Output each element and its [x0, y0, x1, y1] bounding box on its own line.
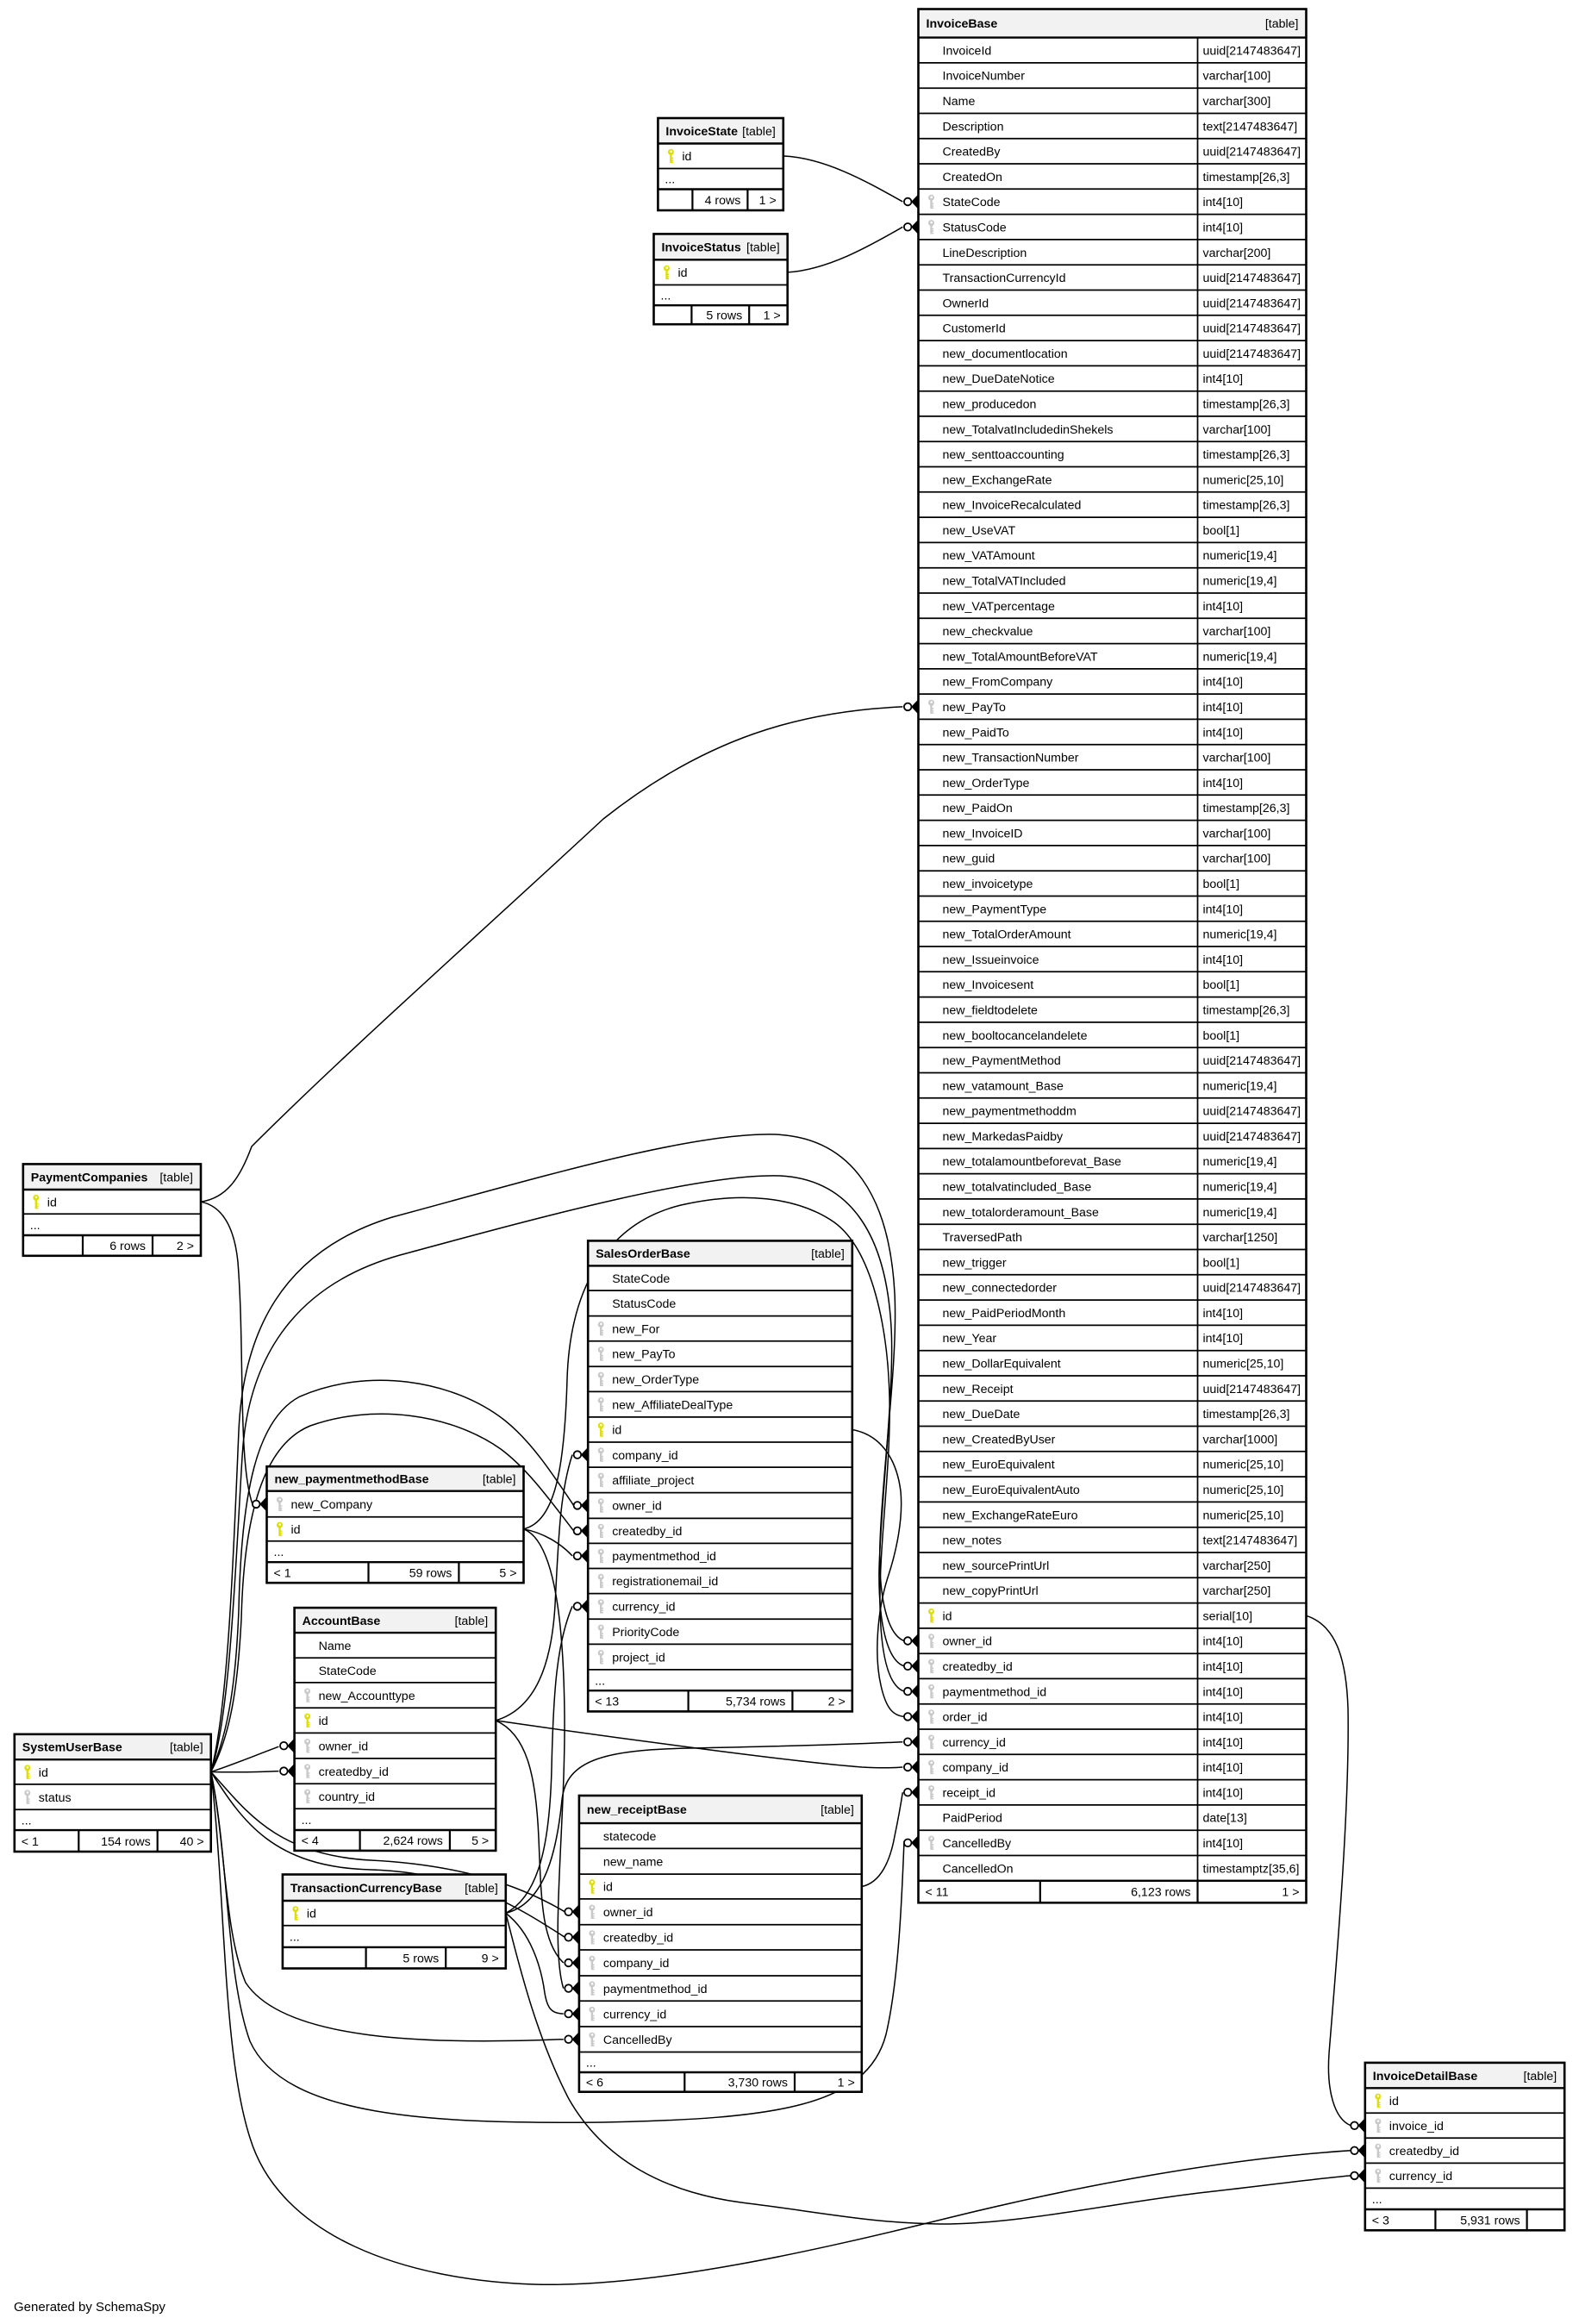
svg-text:numeric[19,4]: numeric[19,4] — [1203, 575, 1277, 589]
svg-text:new_TotalVATIncluded: new_TotalVATIncluded — [943, 575, 1066, 589]
svg-text:numeric[19,4]: numeric[19,4] — [1203, 1181, 1277, 1195]
svg-text:owner_id: owner_id — [319, 1740, 369, 1753]
svg-text:uuid[2147483647]: uuid[2147483647] — [1203, 1130, 1301, 1144]
svg-text:CreatedOn: CreatedOn — [943, 171, 1002, 184]
svg-text:receipt_id: receipt_id — [943, 1787, 996, 1801]
svg-text:new_DueDate: new_DueDate — [943, 1408, 1020, 1421]
svg-text:...: ... — [586, 2056, 596, 2070]
svg-text:6 rows: 6 rows — [109, 1240, 146, 1253]
svg-text:id: id — [612, 1424, 621, 1438]
svg-text:[table]: [table] — [455, 1615, 489, 1628]
svg-text:[table]: [table] — [465, 1882, 498, 1896]
svg-text:59 rows: 59 rows — [409, 1566, 452, 1580]
svg-text:StateCode: StateCode — [319, 1665, 377, 1678]
svg-text:statecode: statecode — [603, 1830, 657, 1844]
svg-text:154 rows: 154 rows — [101, 1835, 151, 1849]
svg-text:new_TotalOrderAmount: new_TotalOrderAmount — [943, 928, 1071, 942]
svg-text:new_booltocancelandelete: new_booltocancelandelete — [943, 1029, 1088, 1043]
svg-text:new_Issueinvoice: new_Issueinvoice — [943, 953, 1039, 967]
svg-text:timestamp[26,3]: timestamp[26,3] — [1203, 398, 1290, 412]
svg-text:PaymentCompanies: PaymentCompanies — [31, 1171, 148, 1184]
svg-text:int4[10]: int4[10] — [1203, 1711, 1244, 1725]
svg-text:new_EuroEquivalentAuto: new_EuroEquivalentAuto — [943, 1484, 1080, 1497]
svg-text:new_VATpercentage: new_VATpercentage — [943, 600, 1056, 614]
svg-text:new_Receipt: new_Receipt — [943, 1383, 1014, 1396]
svg-text:< 3: < 3 — [1372, 2214, 1389, 2227]
svg-text:numeric[19,4]: numeric[19,4] — [1203, 549, 1277, 563]
svg-text:id: id — [943, 1609, 952, 1623]
svg-text:...: ... — [665, 173, 675, 187]
svg-text:[table]: [table] — [159, 1171, 193, 1184]
svg-text:new_connectedorder: new_connectedorder — [943, 1282, 1058, 1296]
svg-text:currency_id: currency_id — [1389, 2170, 1452, 2183]
svg-text:PaidPeriod: PaidPeriod — [943, 1812, 1002, 1826]
svg-text:new_OrderType: new_OrderType — [943, 777, 1030, 790]
svg-text:timestamp[26,3]: timestamp[26,3] — [1203, 1408, 1290, 1421]
svg-text:new_sourcePrintUrl: new_sourcePrintUrl — [943, 1559, 1050, 1573]
svg-text:new_CreatedByUser: new_CreatedByUser — [943, 1433, 1056, 1446]
svg-text:paymentmethod_id: paymentmethod_id — [943, 1685, 1047, 1699]
svg-text:Generated by SchemaSpy: Generated by SchemaSpy — [14, 2300, 165, 2315]
svg-text:new_TotalvatIncludedinShekels: new_TotalvatIncludedinShekels — [943, 423, 1114, 437]
svg-text:4 rows: 4 rows — [705, 194, 741, 208]
svg-text:numeric[25,10]: numeric[25,10] — [1203, 473, 1284, 487]
svg-text:createdby_id: createdby_id — [1389, 2145, 1459, 2158]
svg-text:new_producedon: new_producedon — [943, 398, 1037, 412]
svg-text:new_vatamount_Base: new_vatamount_Base — [943, 1079, 1064, 1093]
svg-text:uuid[2147483647]: uuid[2147483647] — [1203, 1054, 1301, 1068]
svg-text:int4[10]: int4[10] — [1203, 1837, 1244, 1851]
svg-text:new_InvoiceID: new_InvoiceID — [943, 827, 1023, 840]
svg-text:id: id — [1389, 2095, 1399, 2108]
svg-text:...: ... — [274, 1546, 284, 1559]
svg-text:currency_id: currency_id — [943, 1736, 1006, 1750]
svg-text:new_For: new_For — [612, 1322, 659, 1336]
svg-text:numeric[19,4]: numeric[19,4] — [1203, 650, 1277, 664]
svg-text:varchar[100]: varchar[100] — [1203, 853, 1271, 866]
svg-text:new_totalvatincluded_Base: new_totalvatincluded_Base — [943, 1181, 1092, 1195]
svg-text:1 >: 1 > — [759, 194, 777, 208]
svg-text:uuid[2147483647]: uuid[2147483647] — [1203, 322, 1301, 336]
svg-text:StateCode: StateCode — [612, 1272, 670, 1286]
svg-text:new_PaidPeriodMonth: new_PaidPeriodMonth — [943, 1307, 1066, 1321]
svg-text:CreatedBy: CreatedBy — [943, 146, 1002, 159]
svg-text:new_paymentmethoddm: new_paymentmethoddm — [943, 1105, 1077, 1119]
svg-text:new_receiptBase: new_receiptBase — [587, 1803, 687, 1817]
svg-text:owner_id: owner_id — [943, 1635, 993, 1649]
svg-text:1 >: 1 > — [838, 2077, 855, 2090]
svg-text:company_id: company_id — [943, 1761, 1009, 1775]
svg-text:new_copyPrintUrl: new_copyPrintUrl — [943, 1584, 1039, 1598]
svg-text:< 13: < 13 — [595, 1696, 619, 1709]
svg-text:1 >: 1 > — [1282, 1886, 1299, 1900]
svg-text:int4[10]: int4[10] — [1203, 222, 1244, 235]
svg-text:2 >: 2 > — [177, 1240, 194, 1253]
svg-text:affiliate_project: affiliate_project — [612, 1474, 694, 1488]
svg-text:2 >: 2 > — [828, 1696, 846, 1709]
svg-text:new_InvoiceRecalculated: new_InvoiceRecalculated — [943, 499, 1082, 513]
svg-text:new_Year: new_Year — [943, 1332, 997, 1346]
svg-text:...: ... — [290, 1931, 300, 1945]
svg-text:numeric[19,4]: numeric[19,4] — [1203, 1206, 1277, 1220]
svg-text:varchar[200]: varchar[200] — [1203, 247, 1271, 260]
svg-text:int4[10]: int4[10] — [1203, 1685, 1244, 1699]
svg-text:bool[1]: bool[1] — [1203, 1029, 1240, 1043]
svg-text:new_checkvalue: new_checkvalue — [943, 625, 1033, 639]
svg-text:[table]: [table] — [742, 125, 776, 139]
svg-text:LineDescription: LineDescription — [943, 247, 1027, 260]
svg-text:new_name: new_name — [603, 1855, 664, 1869]
svg-text:id: id — [603, 1881, 613, 1895]
svg-text:< 4: < 4 — [302, 1834, 319, 1848]
svg-text:status: status — [39, 1791, 72, 1805]
svg-text:varchar[100]: varchar[100] — [1203, 423, 1271, 437]
svg-text:uuid[2147483647]: uuid[2147483647] — [1203, 347, 1301, 361]
svg-text:int4[10]: int4[10] — [1203, 676, 1244, 690]
svg-text:new_PaymentMethod: new_PaymentMethod — [943, 1054, 1061, 1068]
svg-text:int4[10]: int4[10] — [1203, 1635, 1244, 1649]
svg-text:uuid[2147483647]: uuid[2147483647] — [1203, 272, 1301, 285]
svg-text:new_OrderType: new_OrderType — [612, 1373, 699, 1387]
svg-text:TraversedPath: TraversedPath — [943, 1231, 1023, 1245]
svg-text:3,730 rows: 3,730 rows — [728, 2077, 788, 2090]
svg-text:id: id — [319, 1715, 328, 1728]
svg-text:uuid[2147483647]: uuid[2147483647] — [1203, 297, 1301, 310]
svg-text:text[2147483647]: text[2147483647] — [1203, 1534, 1298, 1548]
svg-text:new_ExchangeRate: new_ExchangeRate — [943, 473, 1052, 487]
svg-text:int4[10]: int4[10] — [1203, 701, 1244, 715]
svg-text:new_UseVAT: new_UseVAT — [943, 524, 1016, 538]
svg-text:timestamp[26,3]: timestamp[26,3] — [1203, 499, 1290, 513]
svg-text:timestamp[26,3]: timestamp[26,3] — [1203, 802, 1290, 815]
svg-text:id: id — [307, 1908, 316, 1921]
svg-text:new_totalamountbeforevat_Base: new_totalamountbeforevat_Base — [943, 1155, 1122, 1169]
svg-text:new_Invoicesent: new_Invoicesent — [943, 978, 1034, 992]
svg-text:1 >: 1 > — [764, 309, 781, 322]
svg-text:new_MarkedasPaidby: new_MarkedasPaidby — [943, 1130, 1064, 1144]
svg-text:5 >: 5 > — [499, 1566, 516, 1580]
svg-text:...: ... — [661, 290, 671, 303]
svg-text:country_id: country_id — [319, 1790, 375, 1804]
svg-text:varchar[100]: varchar[100] — [1203, 70, 1271, 84]
svg-text:40 >: 40 > — [180, 1835, 204, 1849]
svg-text:bool[1]: bool[1] — [1203, 978, 1240, 992]
svg-text:currency_id: currency_id — [603, 2008, 666, 2021]
svg-text:order_id: order_id — [943, 1711, 988, 1725]
svg-text:int4[10]: int4[10] — [1203, 1736, 1244, 1750]
svg-text:timestamp[26,3]: timestamp[26,3] — [1203, 448, 1290, 462]
svg-text:paymentmethod_id: paymentmethod_id — [603, 1983, 708, 1996]
svg-text:varchar[100]: varchar[100] — [1203, 752, 1271, 765]
svg-text:2,624 rows: 2,624 rows — [383, 1834, 442, 1848]
svg-text:new_PayTo: new_PayTo — [612, 1348, 675, 1362]
svg-text:new_DollarEquivalent: new_DollarEquivalent — [943, 1358, 1061, 1371]
svg-text:Name: Name — [319, 1640, 352, 1653]
svg-text:InvoiceStatus: InvoiceStatus — [662, 241, 741, 255]
svg-text:new_ExchangeRateEuro: new_ExchangeRateEuro — [943, 1509, 1078, 1522]
svg-text:new_documentlocation: new_documentlocation — [943, 347, 1068, 361]
svg-text:numeric[25,10]: numeric[25,10] — [1203, 1484, 1284, 1497]
svg-text:bool[1]: bool[1] — [1203, 1256, 1240, 1270]
svg-text:new_notes: new_notes — [943, 1534, 1002, 1548]
svg-text:5 rows: 5 rows — [403, 1952, 439, 1965]
svg-text:varchar[250]: varchar[250] — [1203, 1584, 1271, 1598]
svg-text:new_FromCompany: new_FromCompany — [943, 676, 1054, 690]
svg-text:uuid[2147483647]: uuid[2147483647] — [1203, 1105, 1301, 1119]
svg-text:[table]: [table] — [1524, 2070, 1557, 2083]
svg-text:< 1: < 1 — [274, 1566, 291, 1580]
svg-text:9 >: 9 > — [482, 1952, 499, 1965]
svg-text:numeric[19,4]: numeric[19,4] — [1203, 1079, 1277, 1093]
svg-text:< 1: < 1 — [22, 1835, 39, 1849]
svg-text:new_senttoaccounting: new_senttoaccounting — [943, 448, 1064, 462]
svg-text:new_AffiliateDealType: new_AffiliateDealType — [612, 1398, 733, 1412]
svg-text:SystemUserBase: SystemUserBase — [22, 1741, 122, 1755]
svg-text:new_PaidOn: new_PaidOn — [943, 802, 1013, 815]
svg-text:numeric[25,10]: numeric[25,10] — [1203, 1459, 1284, 1472]
svg-text:new_totalorderamount_Base: new_totalorderamount_Base — [943, 1206, 1100, 1220]
svg-text:Description: Description — [943, 120, 1004, 134]
svg-text:CancelledBy: CancelledBy — [943, 1837, 1013, 1851]
svg-text:date[13]: date[13] — [1203, 1812, 1247, 1826]
svg-text:invoice_id: invoice_id — [1389, 2120, 1444, 2133]
svg-text:numeric[25,10]: numeric[25,10] — [1203, 1509, 1284, 1522]
svg-text:...: ... — [302, 1814, 312, 1827]
svg-text:5,734 rows: 5,734 rows — [726, 1696, 785, 1709]
svg-text:InvoiceBase: InvoiceBase — [927, 17, 998, 31]
svg-text:[table]: [table] — [1265, 17, 1299, 31]
svg-text:int4[10]: int4[10] — [1203, 600, 1244, 614]
svg-text:new_Accounttype: new_Accounttype — [319, 1690, 415, 1703]
svg-text:id: id — [682, 150, 691, 164]
svg-text:createdby_id: createdby_id — [603, 1932, 673, 1946]
svg-text:...: ... — [595, 1674, 605, 1688]
svg-text:company_id: company_id — [603, 1957, 670, 1971]
svg-text:id: id — [39, 1766, 48, 1780]
svg-text:createdby_id: createdby_id — [943, 1660, 1013, 1674]
svg-text:int4[10]: int4[10] — [1203, 372, 1244, 386]
svg-text:new_PaymentType: new_PaymentType — [943, 903, 1047, 916]
svg-text:int4[10]: int4[10] — [1203, 903, 1244, 916]
svg-text:uuid[2147483647]: uuid[2147483647] — [1203, 1282, 1301, 1296]
svg-text:StateCode: StateCode — [943, 196, 1001, 209]
svg-text:SalesOrderBase: SalesOrderBase — [596, 1247, 690, 1261]
svg-text:timestamp[26,3]: timestamp[26,3] — [1203, 171, 1290, 184]
svg-text:int4[10]: int4[10] — [1203, 1787, 1244, 1801]
svg-text:OwnerId: OwnerId — [943, 297, 989, 310]
svg-text:project_id: project_id — [612, 1651, 665, 1665]
svg-text:createdby_id: createdby_id — [319, 1765, 389, 1779]
svg-text:uuid[2147483647]: uuid[2147483647] — [1203, 146, 1301, 159]
svg-text:new_VATAmount: new_VATAmount — [943, 549, 1035, 563]
svg-text:InvoiceId: InvoiceId — [943, 44, 992, 58]
svg-text:6,123 rows: 6,123 rows — [1131, 1886, 1190, 1900]
svg-text:PriorityCode: PriorityCode — [612, 1626, 679, 1640]
svg-text:int4[10]: int4[10] — [1203, 1332, 1244, 1346]
svg-text:InvoiceState: InvoiceState — [665, 125, 738, 139]
svg-text:serial[10]: serial[10] — [1203, 1609, 1253, 1623]
svg-text:new_PayTo: new_PayTo — [943, 701, 1006, 715]
svg-text:registrationemail_id: registrationemail_id — [612, 1575, 718, 1589]
svg-text:StatusCode: StatusCode — [612, 1297, 676, 1311]
svg-text:company_id: company_id — [612, 1449, 678, 1463]
svg-text:numeric[25,10]: numeric[25,10] — [1203, 1358, 1284, 1371]
svg-text:int4[10]: int4[10] — [1203, 1307, 1244, 1321]
svg-text:numeric[19,4]: numeric[19,4] — [1203, 928, 1277, 942]
svg-text:varchar[250]: varchar[250] — [1203, 1559, 1271, 1573]
svg-text:new_TransactionNumber: new_TransactionNumber — [943, 752, 1079, 765]
svg-text:owner_id: owner_id — [612, 1500, 662, 1514]
svg-text:StatusCode: StatusCode — [943, 222, 1007, 235]
svg-text:currency_id: currency_id — [612, 1601, 675, 1615]
svg-text:new_trigger: new_trigger — [943, 1256, 1007, 1270]
svg-text:TransactionCurrencyId: TransactionCurrencyId — [943, 272, 1066, 285]
svg-text:< 6: < 6 — [586, 2077, 603, 2090]
svg-text:[table]: [table] — [170, 1741, 203, 1755]
svg-text:text[2147483647]: text[2147483647] — [1203, 120, 1298, 134]
svg-text:CancelledOn: CancelledOn — [943, 1862, 1014, 1876]
svg-text:new_paymentmethodBase: new_paymentmethodBase — [275, 1473, 429, 1487]
svg-text:5 rows: 5 rows — [706, 309, 742, 322]
svg-text:new_Company: new_Company — [291, 1498, 374, 1512]
svg-text:int4[10]: int4[10] — [1203, 953, 1244, 967]
svg-text:id: id — [291, 1523, 301, 1537]
svg-text:[table]: [table] — [821, 1803, 854, 1817]
svg-text:InvoiceNumber: InvoiceNumber — [943, 70, 1026, 84]
svg-text:InvoiceDetailBase: InvoiceDetailBase — [1373, 2070, 1478, 2083]
svg-text:varchar[1250]: varchar[1250] — [1203, 1231, 1278, 1245]
svg-text:varchar[100]: varchar[100] — [1203, 827, 1271, 840]
svg-text:owner_id: owner_id — [603, 1906, 653, 1920]
svg-text:new_PaidTo: new_PaidTo — [943, 726, 1009, 740]
svg-text:< 11: < 11 — [926, 1886, 949, 1900]
svg-text:bool[1]: bool[1] — [1203, 524, 1240, 538]
svg-text:numeric[19,4]: numeric[19,4] — [1203, 1155, 1277, 1169]
svg-text:...: ... — [22, 1814, 32, 1827]
svg-text:timestamptz[35,6]: timestamptz[35,6] — [1203, 1862, 1300, 1876]
svg-text:int4[10]: int4[10] — [1203, 726, 1244, 740]
svg-text:createdby_id: createdby_id — [612, 1525, 682, 1539]
svg-text:varchar[1000]: varchar[1000] — [1203, 1433, 1278, 1446]
svg-text:new_TotalAmountBeforeVAT: new_TotalAmountBeforeVAT — [943, 650, 1098, 664]
svg-text:uuid[2147483647]: uuid[2147483647] — [1203, 44, 1301, 58]
svg-text:Name: Name — [943, 95, 976, 109]
svg-text:int4[10]: int4[10] — [1203, 1660, 1244, 1674]
svg-text:int4[10]: int4[10] — [1203, 1761, 1244, 1775]
svg-text:id: id — [47, 1196, 57, 1209]
svg-text:id: id — [678, 266, 688, 280]
svg-text:timestamp[26,3]: timestamp[26,3] — [1203, 1004, 1290, 1018]
svg-text:uuid[2147483647]: uuid[2147483647] — [1203, 1383, 1301, 1396]
svg-text:...: ... — [1372, 2193, 1382, 2207]
svg-text:varchar[300]: varchar[300] — [1203, 95, 1271, 109]
svg-text:new_fieldtodelete: new_fieldtodelete — [943, 1004, 1039, 1018]
svg-text:CustomerId: CustomerId — [943, 322, 1006, 336]
svg-text:bool[1]: bool[1] — [1203, 878, 1240, 891]
svg-text:int4[10]: int4[10] — [1203, 777, 1244, 790]
svg-text:TransactionCurrencyBase: TransactionCurrencyBase — [290, 1882, 442, 1896]
svg-text:...: ... — [30, 1219, 41, 1233]
svg-text:[table]: [table] — [483, 1473, 516, 1487]
svg-text:int4[10]: int4[10] — [1203, 196, 1244, 209]
svg-text:paymentmethod_id: paymentmethod_id — [612, 1550, 716, 1564]
svg-text:[table]: [table] — [811, 1247, 845, 1261]
svg-text:CancelledBy: CancelledBy — [603, 2033, 673, 2047]
svg-text:varchar[100]: varchar[100] — [1203, 625, 1271, 639]
svg-text:[table]: [table] — [746, 241, 780, 255]
svg-text:5,931 rows: 5,931 rows — [1460, 2214, 1520, 2227]
svg-text:new_invoicetype: new_invoicetype — [943, 878, 1033, 891]
svg-text:AccountBase: AccountBase — [303, 1615, 381, 1628]
svg-text:new_DueDateNotice: new_DueDateNotice — [943, 372, 1055, 386]
svg-text:new_EuroEquivalent: new_EuroEquivalent — [943, 1459, 1055, 1472]
svg-text:new_guid: new_guid — [943, 853, 995, 866]
svg-text:5 >: 5 > — [471, 1834, 489, 1848]
